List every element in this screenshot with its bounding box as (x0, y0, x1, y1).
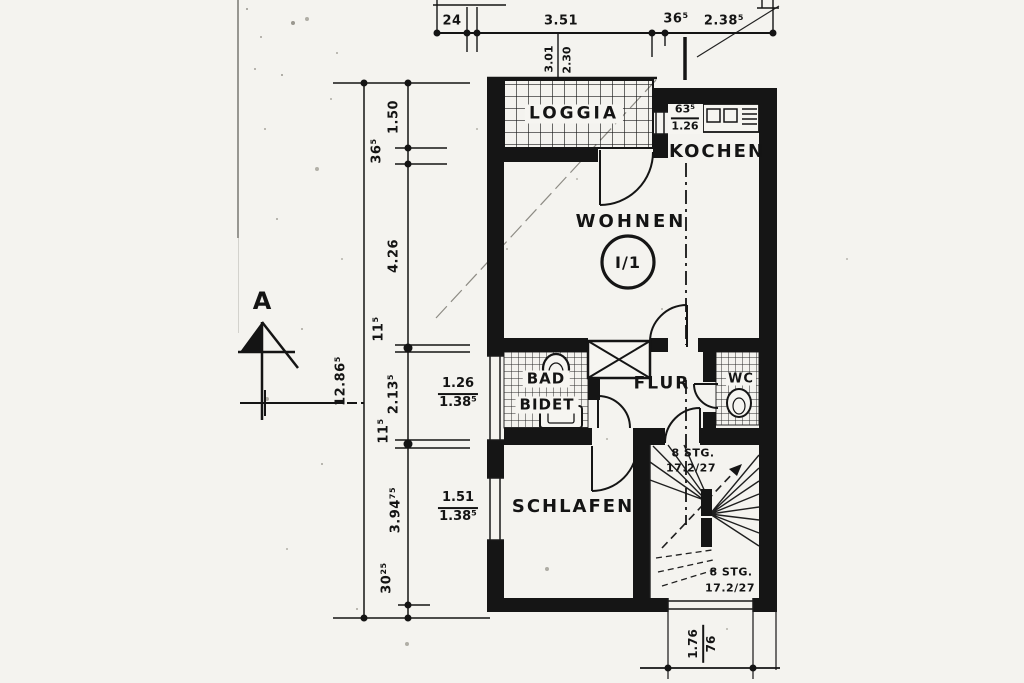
unit-circle-label: I/1 (615, 255, 641, 271)
room-label-kochen: KOCHEN (669, 143, 765, 161)
dim-kochen-niche: 63⁵ 1.26 (671, 103, 699, 132)
stair-note-lower-1: 8 STG. (709, 567, 752, 578)
dim-loggia-230: 2.30 (562, 46, 573, 73)
dim-chain-39475: 3.94⁷⁵ (390, 487, 403, 533)
shaft-xbox (588, 341, 650, 378)
dim-chain-365: 36⁵ (371, 138, 384, 163)
dim-chain-426: 4.26 (388, 239, 401, 273)
bad-window (487, 356, 504, 440)
bad-door (598, 396, 630, 428)
dim-window-bad-top: 1.26 (438, 377, 478, 395)
dim-window-schlafen-top: 1.51 (438, 491, 478, 509)
section-marker-a: A (253, 289, 272, 313)
dim-stair-exit: 1.76 76 (687, 625, 719, 663)
room-label-bad: BAD (523, 371, 570, 388)
section-marker-graphic (238, 322, 368, 420)
room-label-wc: WC (726, 373, 756, 386)
wc-door (694, 384, 718, 408)
dim-stair-exit-bottom: 76 (704, 625, 719, 663)
dim-top-365: 36⁵ (663, 13, 688, 26)
stair-walking-line (662, 470, 736, 548)
dim-chain-layer (333, 80, 490, 621)
dim-top-351: 3.51 (544, 15, 578, 28)
dim-kochen-niche-top: 63⁵ (671, 103, 699, 119)
dim-window-schlafen-bottom: 1.38⁵ (438, 509, 478, 525)
loggia-door (600, 150, 653, 205)
dim-chain-total: 12.86⁵ (335, 356, 348, 406)
dim-stair-exit-top: 1.76 (687, 625, 704, 663)
entry-door (665, 408, 700, 443)
stair-direction-arrow (729, 464, 742, 476)
room-label-wohnen: WOHNEN (576, 213, 687, 231)
dim-chain-2135: 2.13⁵ (388, 374, 401, 414)
room-label-loggia: LOGGIA (525, 105, 623, 124)
schlafen-door (592, 446, 637, 491)
dim-chain-115a: 11⁵ (373, 316, 386, 341)
dim-top-layer (433, 0, 779, 80)
room-label-flur: FLUR (634, 376, 691, 393)
dim-kochen-niche-bottom: 1.26 (671, 119, 699, 133)
dim-window-schlafen: 1.51 1.38⁵ (438, 491, 478, 525)
stair-window (668, 598, 753, 612)
floor-plan-scan: 24 3.51 36⁵ 2.38⁵ 3.01 2.30 1.50 36⁵ 4.2… (0, 0, 1024, 683)
dim-loggia-301: 3.01 (544, 45, 555, 72)
floorplan-linework (0, 0, 1024, 683)
dim-chain-3025: 30²⁵ (381, 562, 394, 593)
dim-top-24: 24 (442, 15, 461, 28)
stair-note-upper-1: 8 STG. (671, 448, 714, 459)
room-label-bidet: BIDET (516, 397, 579, 414)
dim-top-2385: 2.38⁵ (704, 15, 744, 28)
schlafen-window (487, 478, 504, 540)
loggia-kochen-window (653, 112, 668, 134)
dim-chain-115b: 11⁵ (378, 418, 391, 443)
dim-window-bad: 1.26 1.38⁵ (438, 377, 478, 411)
dim-window-bad-bottom: 1.38⁵ (438, 395, 478, 411)
stair-note-upper-2: 17.2/27 (666, 463, 716, 474)
stair-note-lower-2: 17.2/27 (705, 583, 755, 594)
dim-chain-150: 1.50 (388, 100, 401, 134)
toilet-wc (727, 389, 751, 417)
room-label-schlafen: SCHLAFEN (512, 498, 634, 516)
kitchen-counter (703, 104, 759, 132)
